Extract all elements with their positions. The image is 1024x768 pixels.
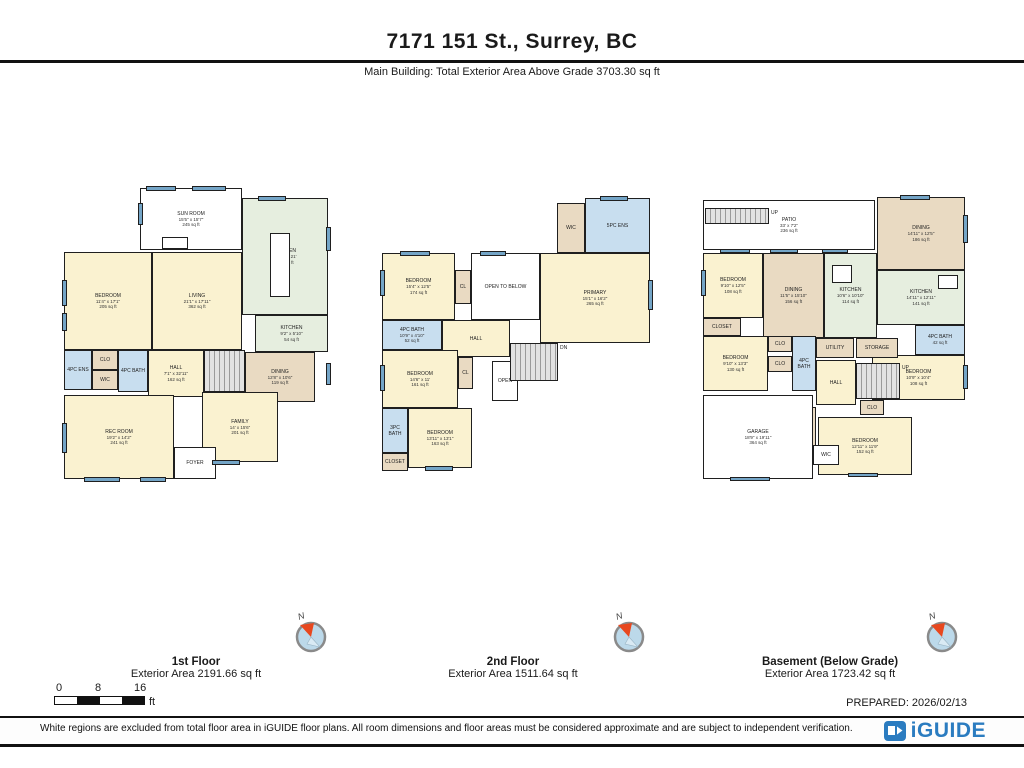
room-4pc-bath: 4PC BATH — [792, 336, 816, 391]
room-4pc-bath: 4PC BATH10'9" x 4'10"52 sq ft — [382, 320, 442, 350]
window — [701, 270, 706, 296]
room-label: UTILITY — [826, 345, 845, 351]
fixture-box — [162, 237, 188, 249]
scale-segment — [55, 697, 77, 704]
window — [62, 313, 67, 331]
window — [963, 215, 968, 243]
room-label: 152 sq ft — [856, 449, 873, 454]
room-label: CLO — [775, 341, 785, 347]
room-storage: STORAGE — [856, 338, 898, 358]
scale-tick: 16 — [134, 682, 146, 694]
room-label: 114 sq ft — [842, 299, 859, 304]
room-clo: CLO — [860, 400, 884, 415]
scale-bar: 0 8 16 ft — [54, 682, 184, 705]
window — [963, 365, 968, 389]
window — [138, 203, 143, 225]
room-label: 241 sq ft — [110, 440, 127, 445]
scale-unit: ft — [149, 696, 155, 708]
window — [822, 249, 848, 253]
floor-name: Basement (Below Grade) — [690, 656, 970, 668]
room-hall: HALL7'1" x 32'11"162 sq ft — [148, 350, 204, 397]
room-label: 186 sq ft — [912, 237, 929, 242]
stairs-direction-label: UP — [902, 365, 909, 371]
iguide-logo-icon — [883, 719, 907, 743]
room-4pc-ens: 4PC ENS — [64, 350, 92, 390]
room-label: 201 sq ft — [231, 430, 248, 435]
room-foyer: FOYER — [174, 447, 216, 479]
compass-icon: N — [605, 610, 651, 656]
page-subtitle: Main Building: Total Exterior Area Above… — [0, 66, 1024, 78]
window — [212, 460, 240, 465]
scale-segment — [122, 697, 144, 704]
room-closet: CLOSET — [382, 453, 408, 471]
window — [192, 186, 226, 191]
scale-segment — [100, 697, 122, 704]
room-utility: UTILITY — [816, 338, 854, 358]
page-title: 7171 151 St., Surrey, BC — [0, 30, 1024, 54]
window — [84, 477, 120, 482]
window — [326, 363, 331, 385]
window — [146, 186, 176, 191]
scale-tick: 0 — [56, 682, 62, 694]
room-clo: CLO — [92, 350, 118, 370]
floorplan-basement: PATIO33' x 7'2"236 sq ftDINING14'11" x 1… — [700, 195, 968, 485]
room-bedroom: BEDROOM14'6" x 11'161 sq ft — [382, 350, 458, 408]
room-cl: CL — [458, 357, 473, 389]
window — [600, 196, 628, 201]
caption-2nd-floor: 2nd Floor Exterior Area 1511.64 sq ft — [373, 656, 653, 680]
room-label: FOYER — [186, 460, 203, 466]
floor-area: Exterior Area 2191.66 sq ft — [56, 668, 336, 680]
room-label: 265 sq ft — [586, 301, 603, 306]
room-label: 362 sq ft — [188, 304, 205, 309]
room-hall: HALL — [816, 360, 856, 405]
room-label: 108 sq ft — [724, 289, 741, 294]
scale-tick: 8 — [95, 682, 101, 694]
window — [848, 473, 878, 477]
room-primary: PRIMARY15'1" x 16'2"265 sq ft — [540, 253, 650, 343]
window — [400, 251, 430, 256]
prepared-date: PREPARED: 2026/02/13 — [846, 697, 967, 709]
room-label: 156 sq ft — [785, 299, 802, 304]
floorplan-2nd-floor: WIC5PC ENSPRIMARY15'1" x 16'2"265 sq ftB… — [380, 195, 652, 480]
room-label: 174 sq ft — [410, 290, 427, 295]
floor-name: 2nd Floor — [373, 656, 653, 668]
room-label: WIC — [821, 452, 831, 458]
room-sun-room: SUN ROOM15'5" x 15'7"245 sq ft — [140, 188, 242, 250]
room-wic: WIC — [557, 203, 585, 253]
room-dining: DINING14'11" x 12'5"186 sq ft — [877, 197, 965, 270]
room-label: 4PC BATH — [121, 368, 145, 374]
room-label: 236 sq ft — [780, 228, 797, 233]
room-label: CLOSET — [385, 459, 405, 465]
window — [258, 196, 286, 201]
window — [425, 466, 453, 471]
room-rec-room: REC ROOM19'2" x 14'2"241 sq ft — [64, 395, 174, 479]
room-5pc-ens: 5PC ENS — [585, 198, 650, 253]
iguide-logo: iGUIDE — [883, 719, 986, 743]
room-label: CLOSET — [712, 324, 732, 330]
room-label: 205 sq ft — [99, 304, 116, 309]
window — [770, 249, 798, 253]
room-4pc-bath: 4PC BATH42 sq ft — [915, 325, 965, 355]
svg-text:N: N — [297, 610, 307, 622]
window — [326, 227, 331, 251]
room-label: CL — [460, 284, 466, 290]
iguide-logo-text: iGUIDE — [911, 719, 986, 743]
room-clo: CLO — [768, 356, 792, 372]
room-closet: CLOSET — [703, 318, 741, 336]
room-label: 4PC BATH — [793, 358, 815, 370]
stairs — [510, 343, 558, 381]
disclaimer-text: White regions are excluded from total fl… — [40, 723, 853, 734]
fixture-box — [938, 275, 958, 289]
room-garage: GARAGE18'9" x 19'11"364 sq ft — [703, 395, 813, 479]
room-label: 108 sq ft — [910, 381, 927, 386]
room-label: 130 sq ft — [727, 367, 744, 372]
room-wic: WIC — [813, 445, 839, 465]
scale-track — [54, 696, 145, 705]
floorplan-page: 7171 151 St., Surrey, BC Main Building: … — [0, 0, 1024, 768]
floorplan-1st-floor: SUN ROOM15'5" x 15'7"245 sq ftKITCHEN15'… — [62, 185, 330, 495]
fixture-box — [270, 233, 290, 297]
window — [380, 270, 385, 296]
room-bedroom: BEDROOM13'11" x 13'1"163 sq ft — [408, 408, 472, 468]
room-label: 4PC ENS — [67, 367, 88, 373]
scale-ticks: 0 8 16 — [54, 682, 184, 695]
floor-area: Exterior Area 1723.42 sq ft — [690, 668, 970, 680]
stairs — [204, 350, 245, 392]
room-label: 52 sq ft — [405, 338, 420, 343]
window — [140, 477, 166, 482]
room-label: HALL — [470, 336, 483, 342]
floor-name: 1st Floor — [56, 656, 336, 668]
window — [720, 249, 750, 253]
room-dining: DINING11'5" x 15'10"156 sq ft — [763, 253, 824, 338]
window — [62, 423, 67, 453]
svg-text:N: N — [928, 610, 938, 622]
window — [480, 251, 506, 256]
room-bedroom: BEDROOM11'4" x 17'1"205 sq ft — [64, 252, 152, 350]
room-wic: WIC — [92, 370, 118, 390]
room-label: CLO — [100, 357, 110, 363]
room-label: STORAGE — [865, 345, 889, 351]
room-bedroom: BEDROOM15'4" x 12'5"174 sq ft — [382, 253, 455, 320]
room-label: HALL — [830, 380, 843, 386]
stairs-direction-label: UP — [771, 210, 778, 216]
window — [380, 365, 385, 391]
room-bedroom: BEDROOM9'10" x 13'3"130 sq ft — [703, 336, 768, 391]
room-3pc-bath: 3PC BATH — [382, 408, 408, 453]
room-label: 162 sq ft — [167, 377, 184, 382]
room-label: 161 sq ft — [411, 382, 428, 387]
compass-icon: N — [918, 610, 964, 656]
svg-text:N: N — [615, 610, 625, 622]
room-label: 364 sq ft — [749, 440, 766, 445]
room-label: 5PC ENS — [607, 223, 628, 229]
divider — [0, 60, 1024, 63]
caption-basement: Basement (Below Grade) Exterior Area 172… — [690, 656, 970, 680]
scale-segment — [77, 697, 99, 704]
stairs — [856, 363, 900, 399]
room-label: 42 sq ft — [933, 340, 948, 345]
compass-icon: N — [287, 610, 333, 656]
room-label: 119 sq ft — [272, 380, 289, 385]
room-label: 54 sq ft — [284, 337, 299, 342]
room-label: 245 sq ft — [182, 222, 199, 227]
room-label: OPEN TO BELOW — [485, 284, 527, 290]
room-bedroom: BEDROOM9'10" x 12'5"108 sq ft — [703, 253, 763, 318]
stairs — [705, 208, 769, 224]
room-label: 3PC BATH — [383, 425, 407, 437]
fixture-box — [832, 265, 852, 283]
room-4pc-bath: 4PC BATH — [118, 350, 148, 392]
room-label: CL — [462, 370, 468, 376]
room-clo: CLO — [768, 336, 792, 352]
room-kitchen: KITCHEN9'2" x 5'10"54 sq ft — [255, 315, 328, 352]
room-label: WIC — [100, 377, 110, 383]
caption-1st-floor: 1st Floor Exterior Area 2191.66 sq ft — [56, 656, 336, 680]
room-label: WIC — [566, 225, 576, 231]
room-living: LIVING21'1" x 17'11"362 sq ft — [152, 252, 242, 350]
window — [900, 195, 930, 200]
window — [648, 280, 653, 310]
floor-area: Exterior Area 1511.64 sq ft — [373, 668, 653, 680]
room-label: 163 sq ft — [431, 441, 448, 446]
room-open-to-below: OPEN TO BELOW — [471, 253, 540, 320]
room-label: CLO — [867, 405, 877, 411]
divider — [0, 744, 1024, 747]
window — [730, 477, 770, 481]
stairs-direction-label: DN — [560, 345, 567, 351]
window — [62, 280, 67, 306]
room-cl: CL — [455, 270, 471, 304]
room-label: CLO — [775, 361, 785, 367]
room-label: 141 sq ft — [912, 301, 929, 306]
